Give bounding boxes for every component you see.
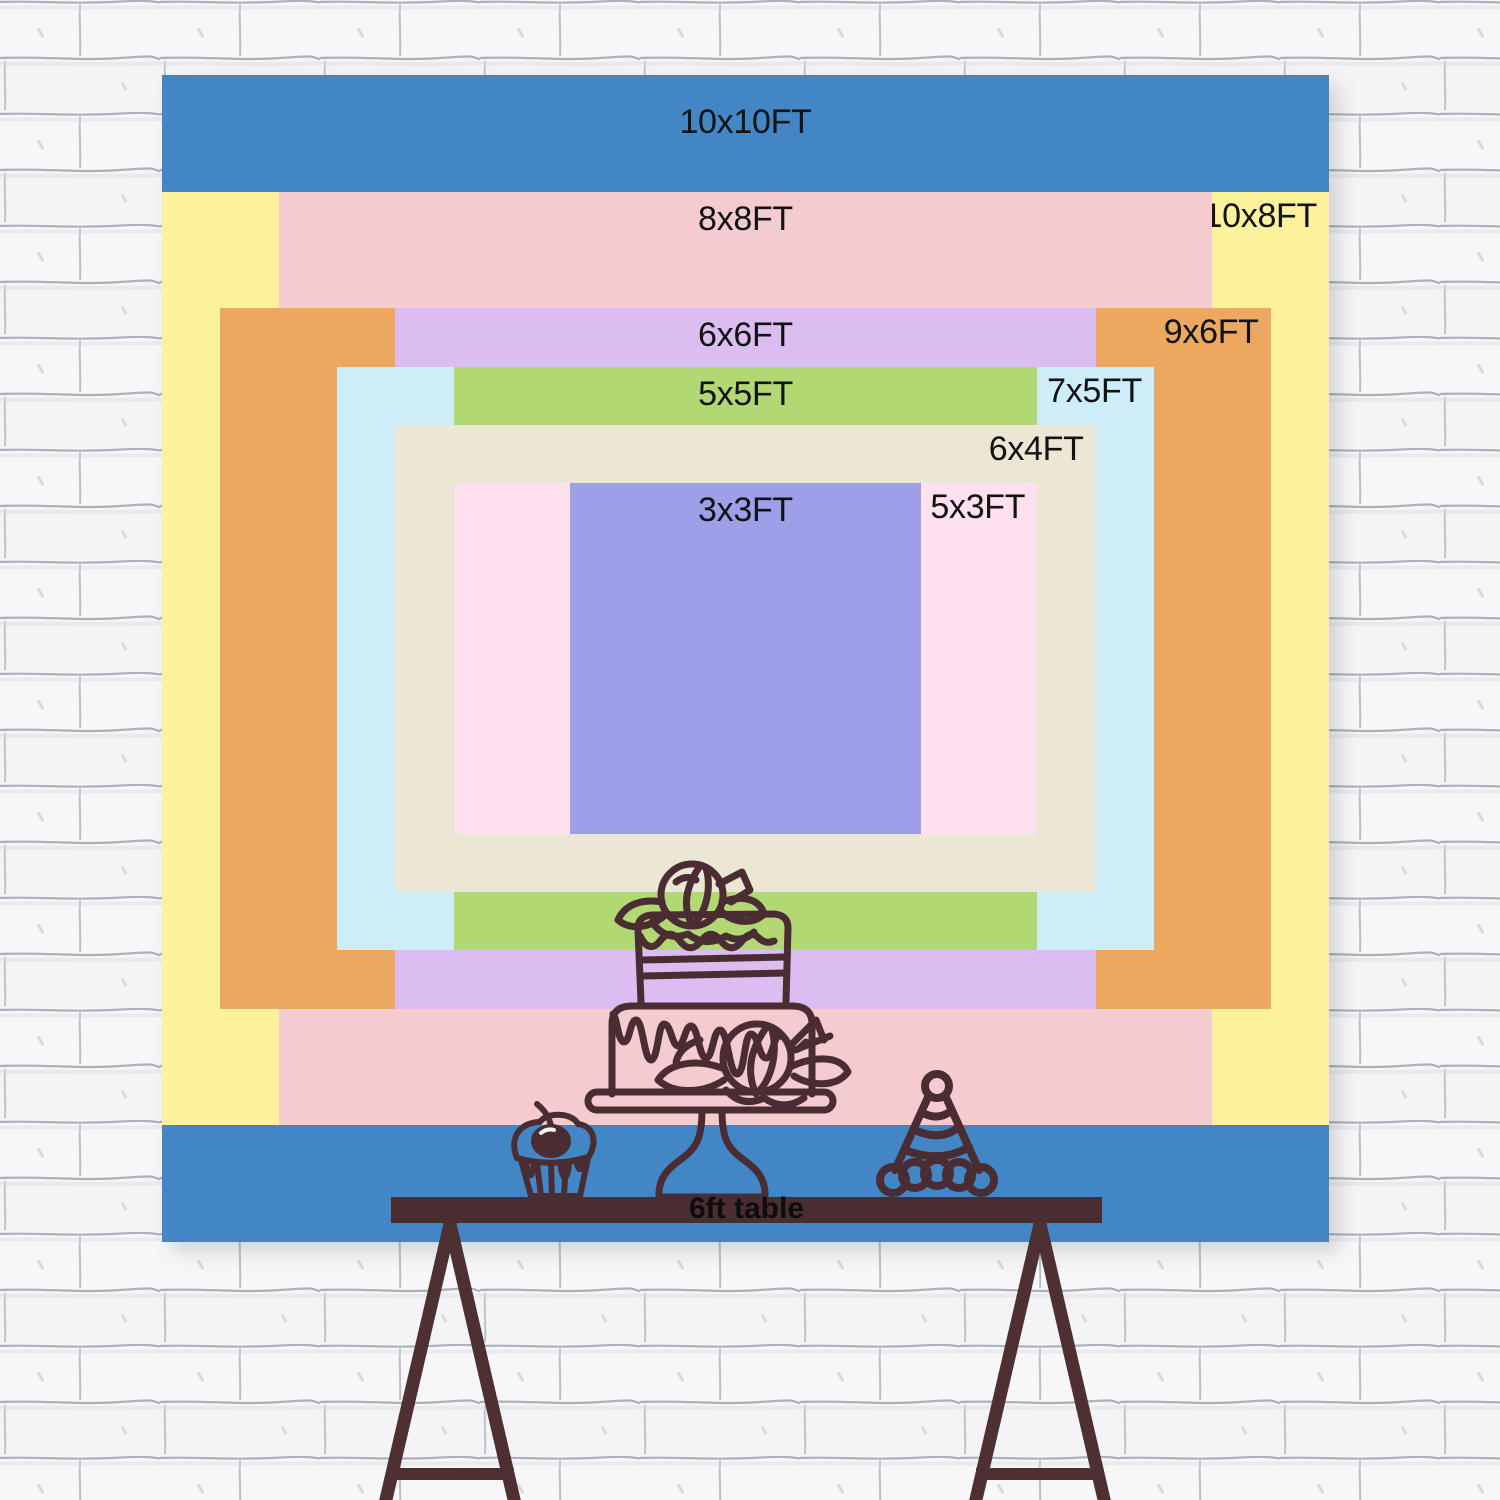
right-trestle-inner-leg (974, 1224, 1040, 1500)
left-trestle-outer-leg (384, 1224, 450, 1500)
right-trestle-outer-leg (1040, 1224, 1106, 1500)
table-size-label: 6ft table (391, 1192, 1102, 1226)
trestle-legs (0, 0, 1500, 1500)
left-trestle-inner-leg (450, 1224, 516, 1500)
size-chart-stage: 10x10FT10x8FT8x8FT9x6FT6x6FT7x5FT5x5FT6x… (0, 0, 1500, 1500)
